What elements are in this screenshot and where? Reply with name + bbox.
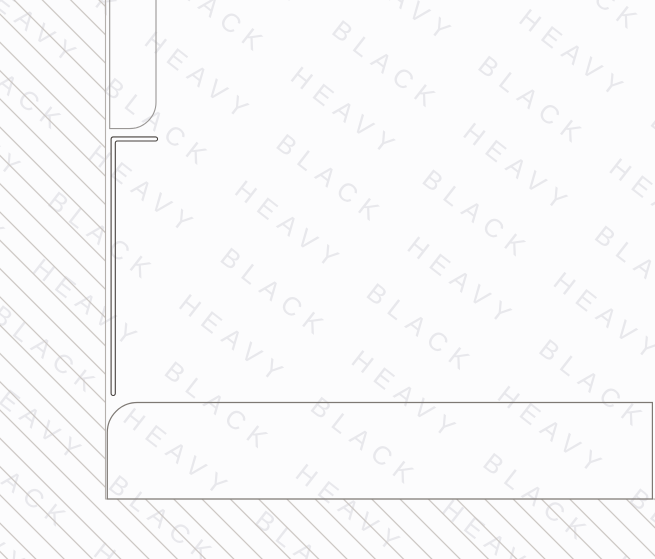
skirting-board [107,403,652,500]
wall-board [110,0,156,129]
wall-hatch [0,0,655,559]
section-drawing [0,0,655,559]
technical-drawing-canvas: HEAVY BLACK HEAVY BLACK HEAVY BLACK HEAV… [0,0,655,559]
wall-face-line [106,0,655,499]
shadow-gap-profile [111,137,157,396]
